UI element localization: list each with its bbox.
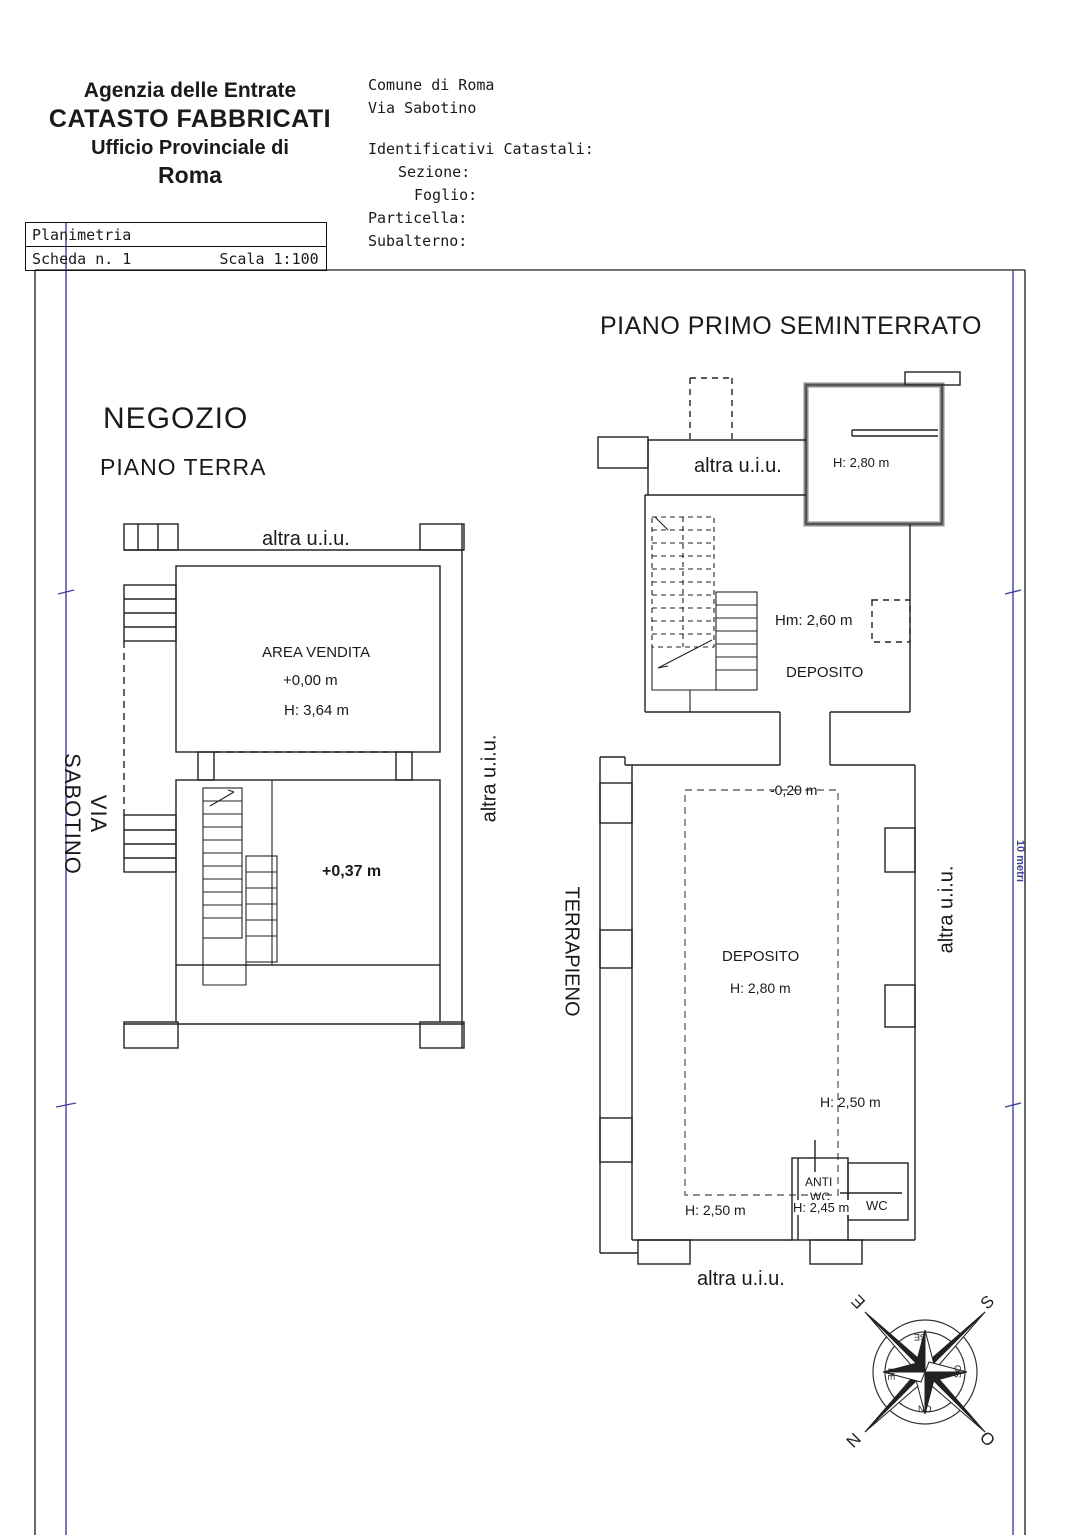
- ground-floor-name: NEGOZIO: [103, 402, 248, 436]
- basement-level-title: PIANO PRIMO SEMINTERRATO: [600, 312, 982, 341]
- gf-elevation-label: +0,00 m: [283, 672, 338, 689]
- bf-small-room-height: H: 2,80 m: [833, 455, 889, 470]
- office-line: Ufficio Provinciale di: [40, 136, 340, 161]
- bf-top-boundary-label: altra u.i.u.: [694, 455, 782, 478]
- compass-e-label: E: [848, 1291, 869, 1312]
- identificativi-label: Identificativi Catastali:: [368, 142, 594, 157]
- ground-floor-level: PIANO TERRA: [100, 454, 267, 481]
- particella-label: Particella:: [368, 211, 594, 226]
- bf-upper-room-label: DEPOSITO: [786, 664, 863, 681]
- foglio-label: Foglio:: [368, 188, 594, 203]
- bf-wc-label: WC: [866, 1198, 888, 1213]
- sheet-info-box: Planimetria Scheda n. 1 Scala 1:100: [25, 222, 327, 271]
- bf-antiwc-line1: ANTI: [805, 1175, 832, 1189]
- gf-stair-elevation-label: +0,37 m: [322, 863, 381, 881]
- street-label: Via Sabotino: [368, 101, 594, 116]
- ground-floor-stairs: [203, 780, 277, 985]
- scale-bar-label: 10 metri: [1014, 831, 1026, 891]
- office-city: Roma: [40, 161, 340, 190]
- cadastral-id-block: Comune di Roma Via Sabotino Identificati…: [368, 78, 594, 257]
- gf-room-label: AREA VENDITA: [262, 644, 370, 661]
- catasto-title: CATASTO FABBRICATI: [40, 104, 340, 135]
- bf-left-boundary-label: TERRAPIENO: [560, 881, 583, 1023]
- bf-height-left-label: H: 2,50 m: [685, 1202, 746, 1218]
- gf-height-label: H: 3,64 m: [284, 702, 349, 719]
- compass-no-label: NO: [918, 1404, 932, 1414]
- sheet-scale: Scala 1:100: [219, 250, 318, 268]
- gf-street-label: VIA SABOTINO: [59, 734, 111, 894]
- ground-floor-drawing: [124, 524, 464, 1048]
- bf-main-room-label: DEPOSITO: [722, 948, 799, 965]
- bf-right-boundary-label: altra u.i.u.: [936, 855, 959, 965]
- compass-o-label: O: [976, 1428, 999, 1451]
- sheet-title: Planimetria: [26, 223, 326, 247]
- basement-floor-drawing: [598, 372, 960, 1264]
- bf-elevation-label: -0,20 m: [770, 782, 817, 798]
- agency-name: Agenzia delle Entrate: [40, 78, 340, 104]
- gf-right-boundary-label: altra u.i.u.: [479, 724, 502, 834]
- sheet-number: Scheda n. 1: [32, 250, 131, 268]
- bf-mezzanine-height: Hm: 2,60 m: [775, 612, 853, 629]
- compass-ne-label: NE: [886, 1368, 896, 1381]
- cadastral-plan-page: E S N O SE NE SO NO Agenzia delle Entrat…: [0, 0, 1086, 1535]
- comune-label: Comune di Roma: [368, 78, 594, 93]
- sezione-label: Sezione:: [368, 165, 594, 180]
- compass-so-label: SO: [953, 1365, 963, 1378]
- gf-top-boundary-label: altra u.i.u.: [262, 528, 350, 551]
- compass-s-label: S: [977, 1292, 998, 1313]
- compass-se-label: SE: [914, 1332, 926, 1342]
- bf-main-room-height: H: 2,80 m: [730, 980, 791, 996]
- compass-n-label: N: [842, 1429, 864, 1451]
- subalterno-label: Subalterno:: [368, 234, 594, 249]
- basement-stairs: [652, 517, 757, 712]
- compass-rose: E S N O SE NE SO NO: [842, 1291, 998, 1451]
- agency-header: Agenzia delle Entrate CATASTO FABBRICATI…: [40, 78, 340, 189]
- bf-antiwc-height: H: 2,45 m: [793, 1200, 849, 1215]
- bf-bottom-boundary-label: altra u.i.u.: [697, 1268, 785, 1291]
- bf-height-right-label: H: 2,50 m: [820, 1094, 881, 1110]
